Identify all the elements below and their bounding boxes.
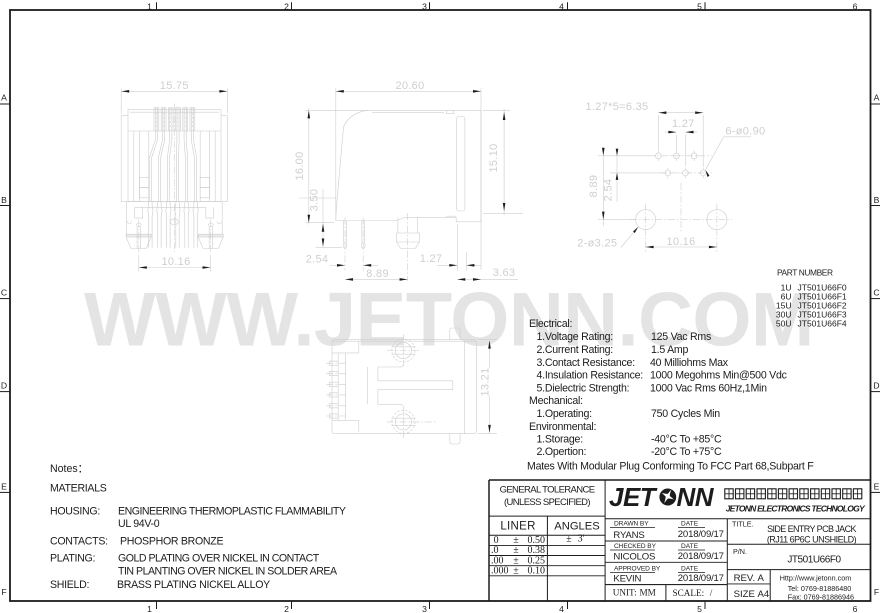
svg-text:1: 1 [147,604,152,613]
svg-text:1.Operating:: 1.Operating: [537,408,592,420]
svg-text:HOUSING:: HOUSING: [50,506,100,518]
svg-text:GOLD PLATING OVER NICKEL IN CO: GOLD PLATING OVER NICKEL IN CONTACT [118,553,320,565]
svg-text:SIZE: SIZE [734,589,755,600]
svg-text:DATE: DATE [681,521,699,528]
svg-text:1000 Vac Rms 60Hz,1Min: 1000 Vac Rms 60Hz,1Min [650,382,767,394]
svg-text:PART NUMBER: PART NUMBER [777,268,833,278]
svg-text:2.54: 2.54 [603,179,615,202]
svg-text:ANGLES: ANGLES [554,521,599,533]
svg-text:2: 2 [284,604,289,613]
svg-text:A: A [874,93,880,103]
svg-text:2-ø3.25: 2-ø3.25 [577,238,617,250]
svg-text:15.75: 15.75 [160,80,189,92]
svg-text:13.21: 13.21 [480,367,492,396]
svg-text:Mates With Modular Plug Confor: Mates With Modular Plug Conforming To FC… [527,461,814,473]
svg-text:125 Vac Rms: 125 Vac Rms [651,331,711,343]
svg-text:C: C [873,288,879,298]
svg-text:1: 1 [147,1,152,11]
svg-text:SIDE ENTRY PCB JACK: SIDE ENTRY PCB JACK [767,524,856,534]
svg-text:1.27: 1.27 [420,253,443,265]
svg-text:BRASS PLATING NICKEL ALLOY: BRASS PLATING NICKEL ALLOY [117,579,270,591]
svg-text:SHIELD:: SHIELD: [50,579,89,591]
svg-text:10.16: 10.16 [161,256,190,268]
svg-text:1.27: 1.27 [672,118,695,130]
svg-text:3.50: 3.50 [309,189,321,212]
svg-text:4.Insulation Resistance:: 4.Insulation Resistance: [537,370,643,382]
svg-text:MATERIALS: MATERIALS [50,483,107,495]
svg-text:8.89: 8.89 [588,175,600,198]
svg-text:Notes：: Notes： [50,463,88,475]
svg-text:E: E [1,482,7,492]
svg-text:Environmental:: Environmental: [529,421,596,433]
svg-text:5: 5 [697,604,702,613]
svg-text:3: 3 [422,604,427,613]
svg-text:1.27*5=6.35: 1.27*5=6.35 [586,101,649,113]
svg-text:6-ø0.90: 6-ø0.90 [725,126,765,138]
svg-text:D: D [1,381,7,391]
svg-text:1.Storage:: 1.Storage: [537,434,583,446]
svg-text:SCALE:: SCALE: [673,588,705,598]
svg-text:Mechanical:: Mechanical: [529,395,583,407]
svg-text:TIN PLANTING OVER NICKEL IN SO: TIN PLANTING OVER NICKEL IN SOLDER AREA [118,566,338,578]
svg-text:D: D [873,381,879,391]
svg-text:REV.: REV. [734,573,756,584]
svg-text:RYANS: RYANS [613,530,644,541]
svg-text:MM: MM [640,588,656,598]
svg-text:TITLE.: TITLE. [732,520,754,529]
svg-text:NICOLOS: NICOLOS [613,552,655,563]
svg-text:ENGINEERING THERMOPLASTIC FLAM: ENGINEERING THERMOPLASTIC FLAMMABILITY [118,506,346,518]
svg-text:15.10: 15.10 [488,143,500,172]
svg-text:16.00: 16.00 [294,151,306,180]
svg-text:PHOSPHOR BRONZE: PHOSPHOR BRONZE [120,536,223,548]
svg-text:2018/09/17: 2018/09/17 [678,529,724,540]
svg-text:LINER: LINER [500,521,535,533]
svg-text:6: 6 [853,604,858,613]
svg-text:PLATING:: PLATING: [50,553,95,565]
svg-text:±: ± [513,566,519,577]
svg-text:UL 94V-0: UL 94V-0 [118,518,160,530]
svg-text:50U: 50U [776,319,792,329]
svg-text:A4: A4 [758,589,770,600]
svg-text:C: C [1,288,7,298]
svg-text:20.60: 20.60 [395,80,424,92]
svg-text:2: 2 [284,1,289,11]
svg-text:0.10: 0.10 [528,566,546,577]
svg-text:Fax: 0769-81886946: Fax: 0769-81886946 [788,593,854,602]
svg-text:A: A [758,573,765,584]
svg-text:6: 6 [853,1,858,11]
svg-text:KEVIN: KEVIN [613,574,641,585]
svg-text:DATE: DATE [681,566,699,573]
svg-text:4: 4 [559,604,564,613]
svg-text:P/N.: P/N. [733,547,747,556]
svg-text:2.Opertion:: 2.Opertion: [537,446,587,458]
svg-text:B: B [1,195,7,205]
svg-text:2018/09/17: 2018/09/17 [678,573,724,584]
svg-text:±: ± [566,534,572,545]
svg-text:1.5 Amp: 1.5 Amp [651,344,688,356]
svg-text:750 Cycles Min: 750 Cycles Min [651,408,720,420]
svg-text:E: E [874,482,880,492]
svg-text:3': 3' [578,534,585,545]
svg-text:A: A [1,93,7,103]
svg-text:3: 3 [422,1,427,11]
svg-text:F: F [874,587,879,597]
svg-text:5: 5 [697,1,702,11]
svg-text:.000: .000 [491,566,509,577]
svg-text:8.89: 8.89 [366,268,389,280]
svg-text:3.Contact Resistance:: 3.Contact Resistance: [537,357,635,369]
svg-text:10.16: 10.16 [666,236,695,248]
svg-text:-40°C To +85°C: -40°C To +85°C [651,434,722,446]
svg-text:-20°C To +75°C: -20°C To +75°C [651,446,722,458]
svg-text:JET: JET [609,482,658,512]
svg-text:2.Current Rating:: 2.Current Rating: [537,344,613,356]
svg-text:CHECKED BY: CHECKED BY [614,543,657,550]
svg-text:2018/09/17: 2018/09/17 [678,551,724,562]
svg-text:UNIT:: UNIT: [613,588,637,598]
svg-text:4: 4 [559,1,564,11]
svg-text:(UNLESS SPECIFIED): (UNLESS SPECIFIED) [504,497,590,508]
svg-text:/: / [710,588,713,598]
svg-text:WWW.JETONN.COM: WWW.JETONN.COM [84,278,814,363]
svg-text:NN: NN [677,482,715,512]
svg-text:JT501U66F4: JT501U66F4 [798,319,847,329]
svg-text:2.54: 2.54 [306,254,329,266]
svg-text:F: F [1,587,6,597]
svg-text:CONTACTS:: CONTACTS: [50,536,108,548]
svg-text:JETONN ELECTRONICS TECHNOLOGY: JETONN ELECTRONICS TECHNOLOGY [726,503,866,513]
svg-text:DRAWN BY: DRAWN BY [614,521,649,528]
svg-text:5.Dielectric Strength:: 5.Dielectric Strength: [537,382,630,394]
svg-text:40 Milliohms Max: 40 Milliohms Max [650,357,729,369]
svg-text:B: B [874,195,880,205]
svg-text:3.63: 3.63 [493,267,516,279]
svg-text:Electrical:: Electrical: [529,318,572,330]
svg-text:JT501U66F0: JT501U66F0 [787,555,841,566]
svg-text:1000 Megohms Min@500 Vdc: 1000 Megohms Min@500 Vdc [650,370,788,382]
svg-text:1.Voltage Rating:: 1.Voltage Rating: [537,331,613,343]
svg-text:APPROVED BY: APPROVED BY [614,566,661,573]
svg-text:GENERAL TOLERANCE: GENERAL TOLERANCE [500,485,595,496]
svg-text:DATE: DATE [681,543,699,550]
svg-text:Http://www.jetonn.com: Http://www.jetonn.com [780,574,852,583]
svg-text:(RJ11 6P6C UNSHIELD): (RJ11 6P6C UNSHIELD) [767,535,857,545]
